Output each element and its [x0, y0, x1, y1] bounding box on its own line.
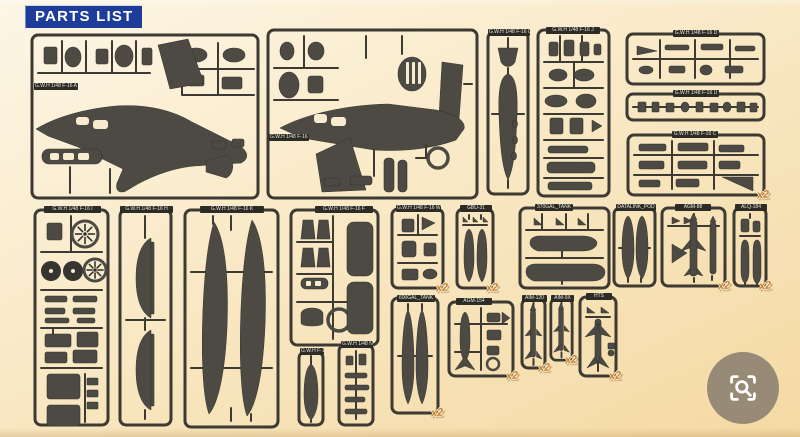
sprue-parts-art: [549, 297, 574, 362]
sprue-parts-art: [660, 206, 727, 288]
sprue-AGM-88: AGM-88x2: [660, 206, 727, 288]
sprue-parts-art: [578, 295, 618, 378]
sprue-label-GBU-31: GBU-31: [460, 205, 492, 212]
sprue-I: G.W.H 1/48 F-16 I: [33, 208, 110, 427]
sprue-parts-art: [33, 208, 110, 427]
sprue-G: G.W.H F-16 G: [297, 350, 325, 427]
sprue-label-G: G.W.H F-16 G: [300, 348, 324, 355]
sprue-label-N: G.W.H 1/48 N: [341, 341, 373, 348]
sprue-W: G.W.H 1/48 F-16 Wx2: [390, 207, 445, 290]
sprue-370GAL: 370GAL_TANK: [518, 206, 611, 290]
sprue-A: G.W.H 1/48 F-16 A: [30, 33, 260, 200]
sprue-parts-art: [30, 33, 260, 200]
sprue-label-J: G.W.H 1/48 F-16 J: [546, 27, 600, 34]
sprue-label-H: G.W.H 1/48 F-16 H: [120, 206, 173, 213]
x2-badge: x2: [564, 353, 577, 366]
page-title: PARTS LIST: [25, 5, 142, 28]
sprue-U: G.W.H 1/48 F-16 U: [625, 92, 766, 122]
sprue-label-B: G.W.H 1/48 F-16 B: [269, 134, 309, 141]
sprue-AIM-9X: AIM-9Xx2: [549, 297, 574, 362]
sprue-parts-art: [266, 28, 479, 200]
sprue-label-W: G.W.H 1/48 F-16 W: [396, 205, 441, 212]
sprue-parts-art: [337, 343, 375, 427]
sprue-parts-art: [536, 28, 611, 198]
sprue-parts-art: [289, 208, 380, 347]
x2-badge: x2: [756, 188, 769, 201]
x2-badge: x2: [485, 281, 498, 294]
sprue-Q: G.W.H 1/48 F-16 Q: [486, 30, 530, 196]
sprue-parts-art: [390, 207, 445, 290]
zoom-button[interactable]: [707, 352, 779, 424]
sprue-parts-art: [390, 296, 440, 415]
sprue-label-HTS: HTS: [586, 293, 612, 300]
sprue-parts-art: [455, 207, 495, 290]
sprue-DATALINK: DATALINK_POD: [612, 206, 657, 288]
sprue-ALQ-184: ALQ-184x2: [732, 206, 768, 288]
sprue-C: G.W.H 1/48 F-16 Cx2: [626, 133, 766, 197]
sprue-GBU-31: GBU-31x2: [455, 207, 495, 290]
sprue-label-K: G.W.H 1/48 F-16 K: [200, 206, 264, 213]
sprue-parts-art: [626, 133, 766, 197]
sprue-label-AIM-120: AIM-120: [522, 295, 547, 302]
x2-badge: x2: [537, 361, 550, 374]
sprue-600GAL: 600GAL_TANKx2: [390, 296, 440, 415]
sprue-label-AGM-88: AGM-88: [675, 204, 711, 211]
scan-search-icon: [727, 372, 759, 404]
sprue-label-A: G.W.H 1/48 F-16 A: [34, 83, 78, 90]
sprue-parts-art: [520, 297, 547, 370]
sprue-label-U: G.W.H 1/48 F-16 U: [673, 90, 719, 97]
sprue-AIM-120: AIM-120x2: [520, 297, 547, 370]
sprue-parts-art: [486, 30, 530, 196]
sprue-D: G.W.H 1/48 F-16 D: [625, 32, 766, 86]
sprue-parts-art: [625, 32, 766, 86]
sprue-label-AIM-9X: AIM-9X: [551, 295, 574, 302]
sprue-label-F: G.W.H 1/48 F-16 F: [315, 206, 373, 213]
sprue-parts-art: [612, 206, 657, 288]
sprue-AGM-154: AGM-154x2: [447, 300, 515, 378]
sprue-HTS: HTSx2: [578, 295, 618, 378]
x2-badge: x2: [430, 406, 443, 419]
sprue-B: G.W.H 1/48 F-16 B: [266, 28, 479, 200]
sprue-parts-art: [297, 350, 325, 427]
sprue-label-C: G.W.H 1/48 F-16 C: [672, 131, 718, 138]
sprue-label-AGM-154: AGM-154: [456, 298, 492, 305]
sprue-F: G.W.H 1/48 F-16 F: [289, 208, 380, 347]
parts-list-page: PARTS LIST G.W.H 1/48 F-16 AG.W.H 1/48 F…: [0, 0, 800, 437]
sprue-label-ALQ-184: ALQ-184: [735, 204, 767, 211]
sprue-label-D: G.W.H 1/48 F-16 D: [673, 30, 719, 37]
sprue-label-Q: G.W.H 1/48 F-16 Q: [488, 29, 530, 36]
x2-badge: x2: [435, 281, 448, 294]
sprue-H: G.W.H 1/48 F-16 H: [118, 208, 173, 427]
sprue-parts-art: [447, 300, 515, 378]
sprue-label-370GAL: 370GAL_TANK: [535, 204, 573, 211]
x2-badge: x2: [758, 279, 771, 292]
sprue-N: G.W.H 1/48 N: [337, 343, 375, 427]
sprue-label-600GAL: 600GAL_TANK: [397, 295, 435, 302]
sprue-J: G.W.H 1/48 F-16 J: [536, 28, 611, 198]
sprue-parts-art: [118, 208, 173, 427]
sprue-label-I: G.W.H 1/48 F-16 I: [44, 206, 101, 213]
x2-badge: x2: [717, 279, 730, 292]
sprue-label-DATALINK: DATALINK_POD: [616, 204, 656, 211]
sprue-parts-art: [732, 206, 768, 288]
sprue-K: G.W.H 1/48 F-16 K: [183, 208, 280, 429]
sprue-parts-art: [518, 206, 611, 290]
x2-badge: x2: [505, 369, 518, 382]
sprue-parts-art: [183, 208, 280, 429]
x2-badge: x2: [608, 369, 621, 382]
